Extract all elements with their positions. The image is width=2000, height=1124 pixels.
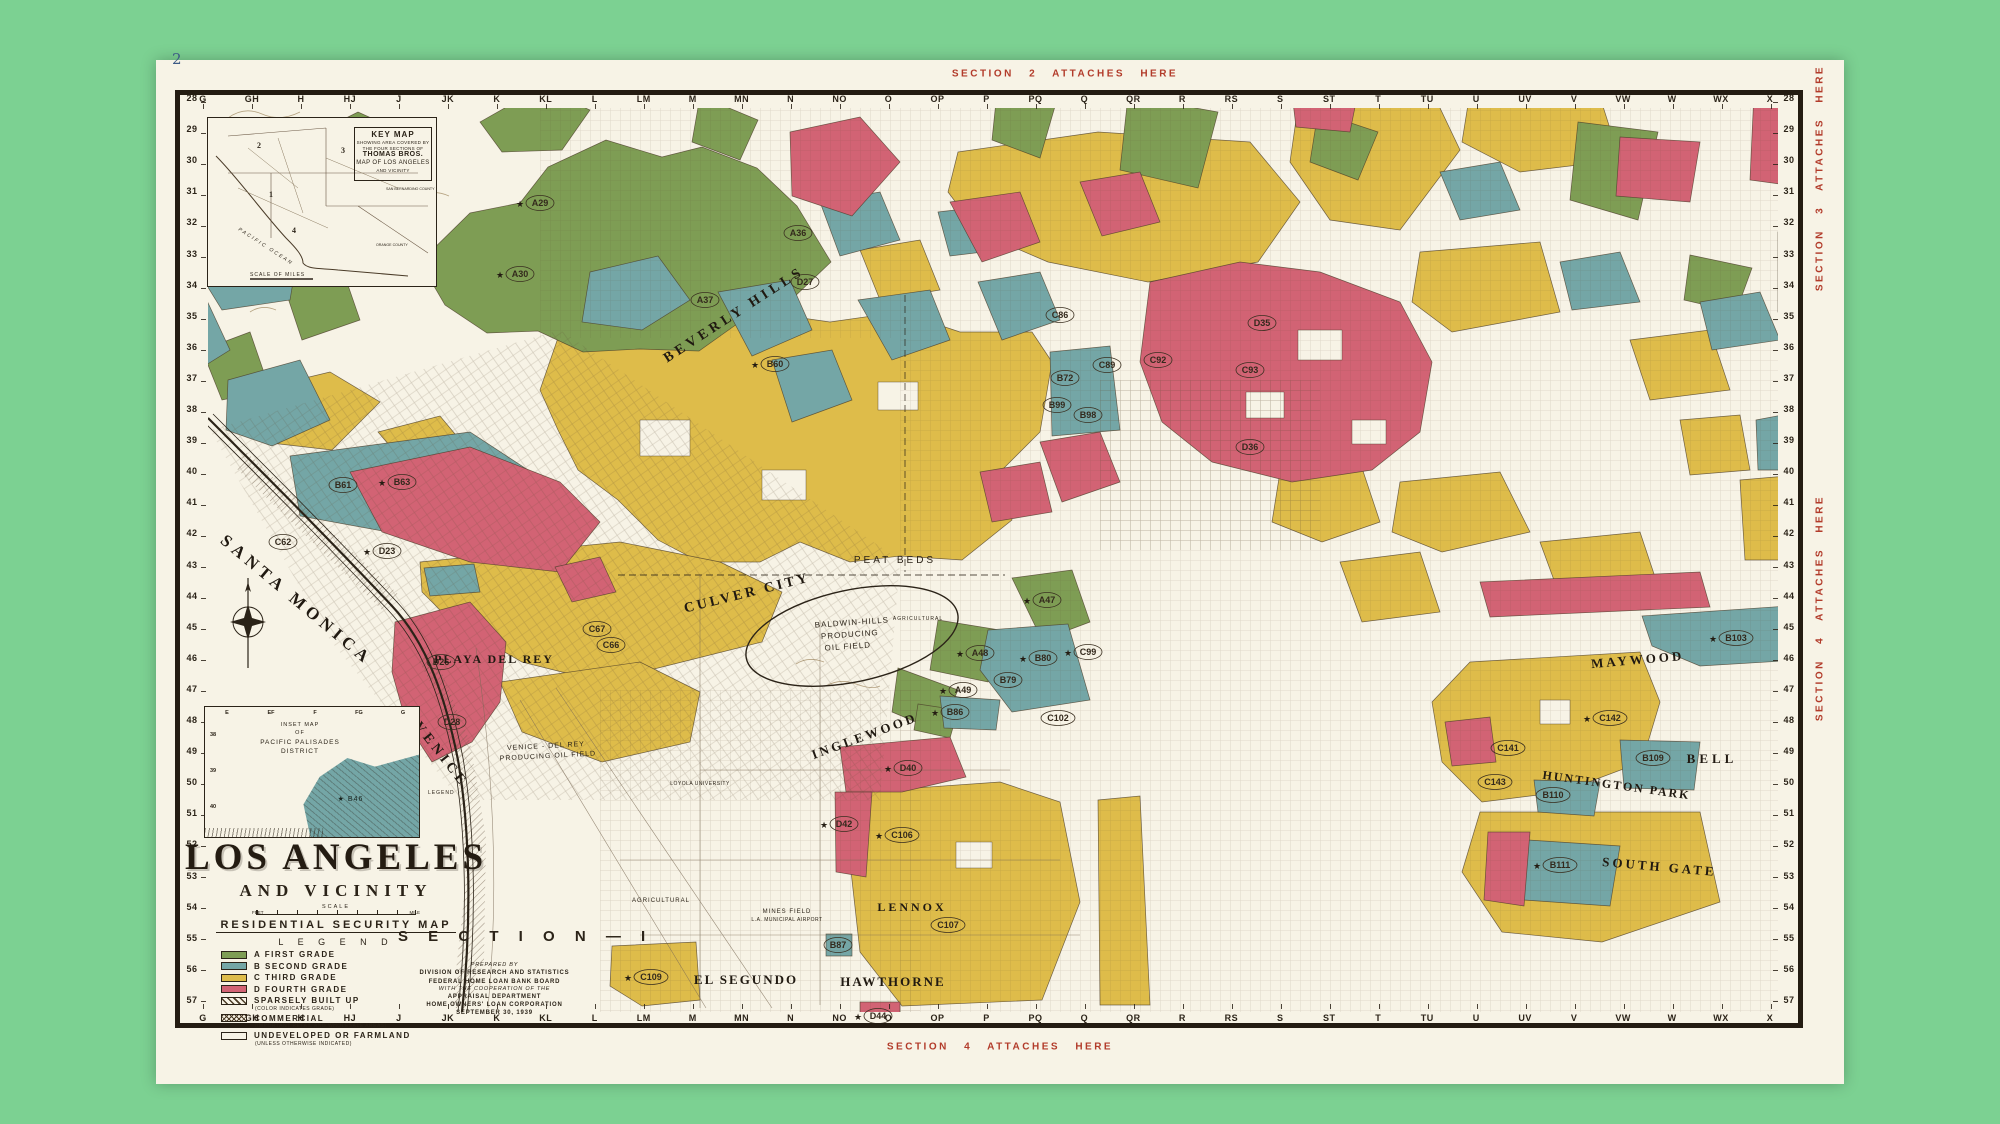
- grid-number-left: 29: [186, 124, 197, 134]
- grid-letter-bottom: X: [1767, 1013, 1774, 1023]
- credits-line: FEDERAL HOME LOAN BANK BOARD: [392, 978, 597, 986]
- credits-line: HOME OWNERS' LOAN CORPORATION: [392, 1001, 597, 1009]
- page-number: 2: [172, 50, 182, 68]
- grid-number-left: 38: [186, 404, 197, 414]
- grid-letter-bottom: Q: [1081, 1013, 1089, 1023]
- scale-bar: SCALE FEET MILE: [256, 904, 416, 915]
- grid-number-left: 40: [186, 466, 197, 476]
- section-stamp-right-lower: SECTION 4 ATTACHES HERE: [1815, 495, 1826, 721]
- key-map-title-box: KEY MAP SHOWING AREA COVERED BY THE FOUR…: [354, 127, 432, 181]
- grid-number-right: 36: [1783, 342, 1794, 352]
- grid-letter-bottom: P: [983, 1013, 990, 1023]
- grid-number-right: 48: [1783, 715, 1794, 725]
- inset-title-line1: INSET MAP: [235, 721, 365, 729]
- legend-swatch-d: [221, 985, 247, 993]
- grid-letter-top: R: [1179, 94, 1186, 104]
- grid-number-left: 35: [186, 311, 197, 321]
- grid-letter-top: M: [689, 94, 697, 104]
- grid-number-right: 45: [1783, 622, 1794, 632]
- inset-title-line3: PACIFIC PALISADES: [235, 738, 365, 748]
- grid-number-left: 45: [186, 622, 197, 632]
- grid-number-left: 44: [186, 591, 197, 601]
- inset-legend-label: LEGEND: [428, 790, 455, 796]
- legend-label: C THIRD GRADE: [254, 973, 337, 982]
- inset-col-letter: G: [401, 710, 405, 716]
- grid-number-left: 48: [186, 715, 197, 725]
- grid-letter-top: GH: [245, 94, 260, 104]
- grid-letter-top: L: [592, 94, 598, 104]
- credits-line: SEPTEMBER 30, 1939: [392, 1009, 597, 1017]
- grid-number-right: 28: [1783, 93, 1794, 103]
- key-map-sub3: MAP OF LOS ANGELES: [355, 160, 431, 168]
- grid-letter-top: ST: [1323, 94, 1336, 104]
- inset-map-box: ★ B46 INSET MAP OF PACIFIC PALISADES DIS…: [204, 706, 420, 838]
- legend-swatch-a: [221, 951, 247, 959]
- grid-number-left: 36: [186, 342, 197, 352]
- grid-letter-top: J: [396, 94, 402, 104]
- key-map-county-1: SAN BERNARDINO COUNTY: [386, 187, 435, 191]
- grid-letter-top: S: [1277, 94, 1284, 104]
- key-map-sub4: AND VICINITY: [355, 168, 431, 174]
- grid-letter-top: KL: [539, 94, 552, 104]
- grid-number-left: 41: [186, 497, 197, 507]
- grid-letter-top: H: [297, 94, 304, 104]
- legend-swatch-white: [221, 1032, 247, 1040]
- grid-letter-top: N: [787, 94, 794, 104]
- legend-label: UNDEVELOPED OR FARMLAND: [254, 1031, 411, 1040]
- grid-letter-top: VW: [1615, 94, 1631, 104]
- key-map-scale-label: SCALE OF MILES: [250, 272, 305, 278]
- section-stamp-bottom: SECTION 4 ATTACHES HERE: [887, 1042, 1113, 1053]
- grid-letter-bottom: RS: [1225, 1013, 1239, 1023]
- grid-letter-top: PQ: [1028, 94, 1042, 104]
- map-subtitle: AND VICINITY: [168, 881, 504, 901]
- inset-title-line4: DISTRICT: [235, 747, 365, 757]
- grid-letter-bottom: W: [1668, 1013, 1677, 1023]
- grid-number-right: 46: [1783, 653, 1794, 663]
- inset-grade-b-zone: [303, 751, 419, 837]
- grid-letter-top: Q: [1081, 94, 1089, 104]
- grid-letter-bottom: UV: [1518, 1013, 1532, 1023]
- grid-number-right: 56: [1783, 964, 1794, 974]
- grid-number-left: 50: [186, 777, 197, 787]
- grid-number-left: 39: [186, 435, 197, 445]
- grid-number-left: 49: [186, 746, 197, 756]
- grid-letter-bottom: N: [787, 1013, 794, 1023]
- scale-feet-label: FEET: [252, 910, 264, 915]
- credits-line: DIVISION OF RESEARCH AND STATISTICS: [392, 969, 597, 977]
- legend-swatch-hatch: [221, 997, 247, 1005]
- grid-number-right: 50: [1783, 777, 1794, 787]
- legend-label: A FIRST GRADE: [254, 950, 335, 959]
- grid-number-left: 28: [186, 93, 197, 103]
- grid-number-right: 39: [1783, 435, 1794, 445]
- grid-letter-bottom: LM: [637, 1013, 651, 1023]
- legend-item: A FIRST GRADE: [221, 950, 451, 959]
- tick-strip-top: [203, 104, 1773, 109]
- legend-label: B SECOND GRADE: [254, 962, 348, 971]
- grid-letter-top: O: [885, 94, 893, 104]
- grid-letter-bottom: MN: [734, 1013, 749, 1023]
- key-map-county-2: ORANGE COUNTY: [376, 243, 408, 247]
- grid-letter-top: K: [493, 94, 500, 104]
- grid-letter-bottom: TU: [1421, 1013, 1434, 1023]
- inset-col-letter: EF: [267, 710, 274, 716]
- legend-label: SPARSELY BUILT UP: [254, 996, 360, 1005]
- tick-strip-right: [1773, 98, 1778, 1002]
- grid-number-right: 31: [1783, 186, 1794, 196]
- grid-letter-bottom: R: [1179, 1013, 1186, 1023]
- grid-letter-top: P: [983, 94, 990, 104]
- grid-letter-top: TU: [1421, 94, 1434, 104]
- grid-letter-bottom: U: [1473, 1013, 1480, 1023]
- grid-letter-top: T: [1375, 94, 1381, 104]
- grid-number-right: 33: [1783, 249, 1794, 259]
- grid-letter-bottom: O: [885, 1013, 893, 1023]
- grid-number-right: 34: [1783, 280, 1794, 290]
- holc-map-scan: A29★A30★A36A37D27B60★B61B63★D23★C62D26D2…: [0, 0, 2000, 1124]
- grid-number-right: 49: [1783, 746, 1794, 756]
- grid-letter-bottom: PQ: [1028, 1013, 1042, 1023]
- grid-letter-top: WX: [1713, 94, 1729, 104]
- legend-swatch-b: [221, 962, 247, 970]
- grid-number-right: 30: [1783, 155, 1794, 165]
- grid-number-right: 55: [1783, 933, 1794, 943]
- key-map-title: KEY MAP: [355, 130, 431, 140]
- grid-letter-bottom: V: [1571, 1013, 1578, 1023]
- grid-letter-top: UV: [1518, 94, 1532, 104]
- grid-letter-top: RS: [1225, 94, 1239, 104]
- grid-number-left: 33: [186, 249, 197, 259]
- grid-number-right: 42: [1783, 528, 1794, 538]
- legend-note: (IMPORTANT RETAIL AND WHOLESALE AREAS): [255, 1023, 451, 1029]
- inset-col-letter: E: [225, 710, 229, 716]
- inset-row-number: 40: [210, 804, 216, 810]
- section-stamp-top: SECTION 2 ATTACHES HERE: [952, 69, 1178, 80]
- grid-letter-bottom: OP: [931, 1013, 945, 1023]
- grid-number-left: 42: [186, 528, 197, 538]
- legend-note: (UNLESS OTHERWISE INDICATED): [255, 1041, 451, 1047]
- grid-number-left: 34: [186, 280, 197, 290]
- section-stamp-right-upper: SECTION 3 ATTACHES HERE: [1815, 65, 1826, 291]
- legend-label: COMMERCIAL: [254, 1014, 324, 1023]
- key-map-sub1: SHOWING AREA COVERED BY: [355, 140, 431, 146]
- grid-letter-top: HJ: [344, 94, 357, 104]
- inset-title-line2: OF: [235, 729, 365, 737]
- grid-letter-top: W: [1668, 94, 1677, 104]
- section-number-label: S E C T I O N — I: [398, 928, 578, 945]
- inset-col-letter: FG: [355, 710, 363, 716]
- grid-number-right: 57: [1783, 995, 1794, 1005]
- grid-number-left: 31: [186, 186, 197, 196]
- grid-letter-top: V: [1571, 94, 1578, 104]
- grid-letter-top: QR: [1126, 94, 1141, 104]
- grid-letter-top: G: [199, 94, 207, 104]
- legend-swatch-commercial: [221, 1014, 247, 1022]
- grid-number-right: 47: [1783, 684, 1794, 694]
- grid-number-right: 53: [1783, 871, 1794, 881]
- grid-number-right: 29: [1783, 124, 1794, 134]
- grid-letter-bottom: M: [689, 1013, 697, 1023]
- key-map-section-2: 2: [257, 141, 261, 150]
- grid-number-left: 37: [186, 373, 197, 383]
- grid-number-left: 47: [186, 684, 197, 694]
- key-map-section-1: 1: [269, 190, 273, 199]
- grid-number-right: 35: [1783, 311, 1794, 321]
- legend-item: UNDEVELOPED OR FARMLAND: [221, 1031, 451, 1040]
- grid-letter-top: OP: [931, 94, 945, 104]
- credits-line: APPRAISAL DEPARTMENT: [392, 993, 597, 1001]
- grid-number-left: 30: [186, 155, 197, 165]
- scale-mile-label: MILE: [409, 910, 420, 915]
- grid-number-right: 54: [1783, 902, 1794, 912]
- inset-col-letter: F: [313, 710, 316, 716]
- grid-letter-top: MN: [734, 94, 749, 104]
- grid-number-left: 32: [186, 217, 197, 227]
- grid-number-right: 51: [1783, 808, 1794, 818]
- key-map-box: 2 3 1 4 PACIFIC OCEAN SAN BERNARDINO COU…: [207, 117, 437, 287]
- key-map-section-3: 3: [341, 146, 345, 155]
- grid-number-right: 44: [1783, 591, 1794, 601]
- grid-letter-top: X: [1767, 94, 1774, 104]
- grid-letter-bottom: ST: [1323, 1013, 1336, 1023]
- credits-line: WITH THE COOPERATION OF THE: [392, 986, 597, 993]
- grid-letter-bottom: QR: [1126, 1013, 1141, 1023]
- key-map-ocean-label: PACIFIC OCEAN: [237, 227, 294, 267]
- grid-number-right: 37: [1783, 373, 1794, 383]
- grid-letter-top: JK: [442, 94, 455, 104]
- legend-label: D FOURTH GRADE: [254, 985, 347, 994]
- inset-row-number: 39: [210, 768, 216, 774]
- grid-letter-top: LM: [637, 94, 651, 104]
- inset-map-title: INSET MAP OF PACIFIC PALISADES DISTRICT: [235, 721, 365, 757]
- grid-letter-bottom: T: [1375, 1013, 1381, 1023]
- grid-letter-top: NO: [832, 94, 847, 104]
- grid-letter-bottom: NO: [832, 1013, 847, 1023]
- grid-number-right: 38: [1783, 404, 1794, 414]
- grid-number-left: 46: [186, 653, 197, 663]
- grid-number-left: 51: [186, 808, 197, 818]
- grid-number-right: 32: [1783, 217, 1794, 227]
- grid-letter-top: U: [1473, 94, 1480, 104]
- inset-zone-label: ★ B46: [338, 795, 364, 803]
- inset-row-number: 38: [210, 732, 216, 738]
- key-map-publisher: THOMAS BROS.: [355, 151, 431, 160]
- grid-letter-bottom: VW: [1615, 1013, 1631, 1023]
- credits-line: PREPARED BY: [392, 962, 597, 969]
- grid-number-right: 40: [1783, 466, 1794, 476]
- grid-number-left: 43: [186, 560, 197, 570]
- key-map-section-4: 4: [292, 226, 296, 235]
- grid-letter-bottom: WX: [1713, 1013, 1729, 1023]
- map-title: LOS ANGELES: [168, 836, 504, 879]
- grid-number-right: 43: [1783, 560, 1794, 570]
- grid-number-right: 41: [1783, 497, 1794, 507]
- grid-number-right: 52: [1783, 839, 1794, 849]
- grid-letter-bottom: S: [1277, 1013, 1284, 1023]
- legend-swatch-c: [221, 974, 247, 982]
- credits-block: PREPARED BYDIVISION OF RESEARCH AND STAT…: [392, 962, 597, 1017]
